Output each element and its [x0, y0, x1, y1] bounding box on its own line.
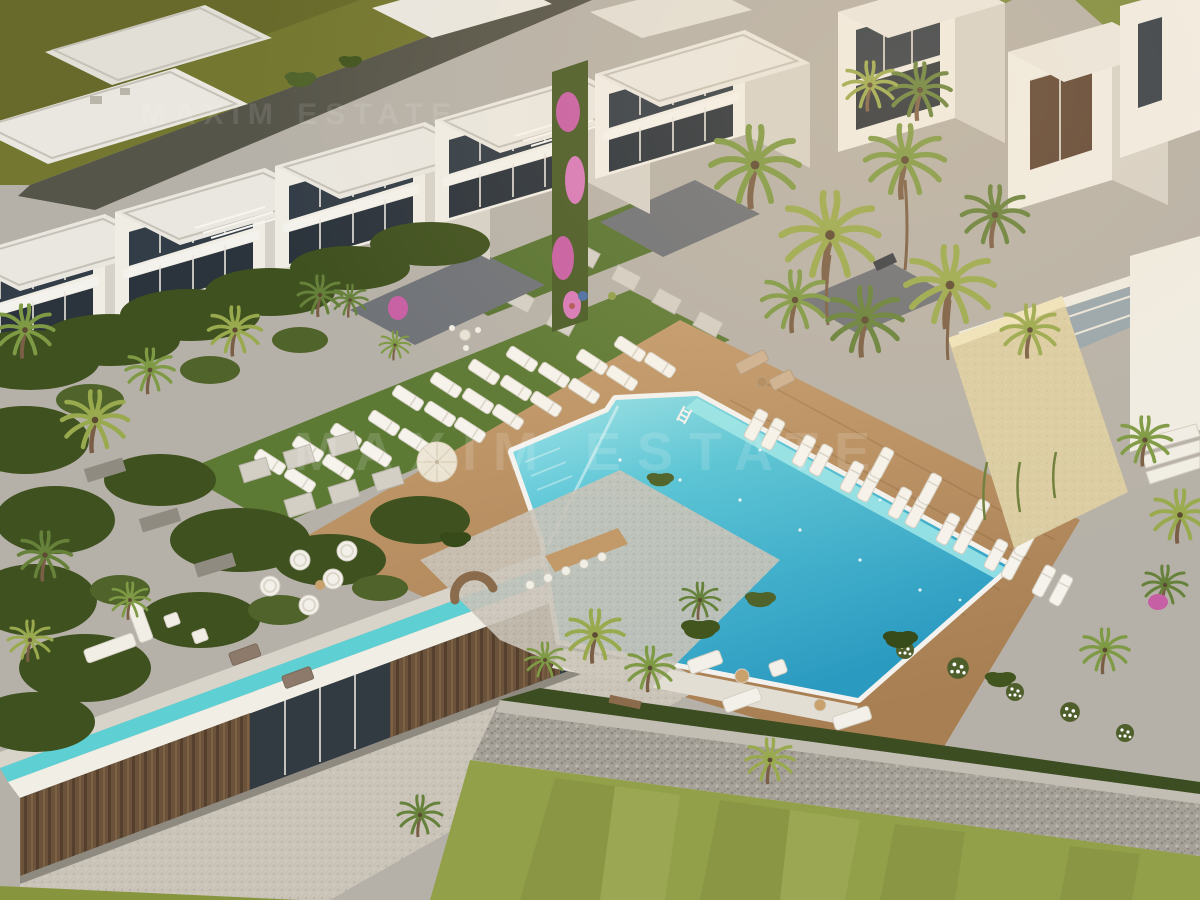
sunlight-overlay [0, 0, 1200, 900]
resort-aerial-rendering: MAXIM ESTATE MAXIM ESTATE [0, 0, 1200, 900]
rendering-canvas: MAXIM ESTATE MAXIM ESTATE [0, 0, 1200, 900]
